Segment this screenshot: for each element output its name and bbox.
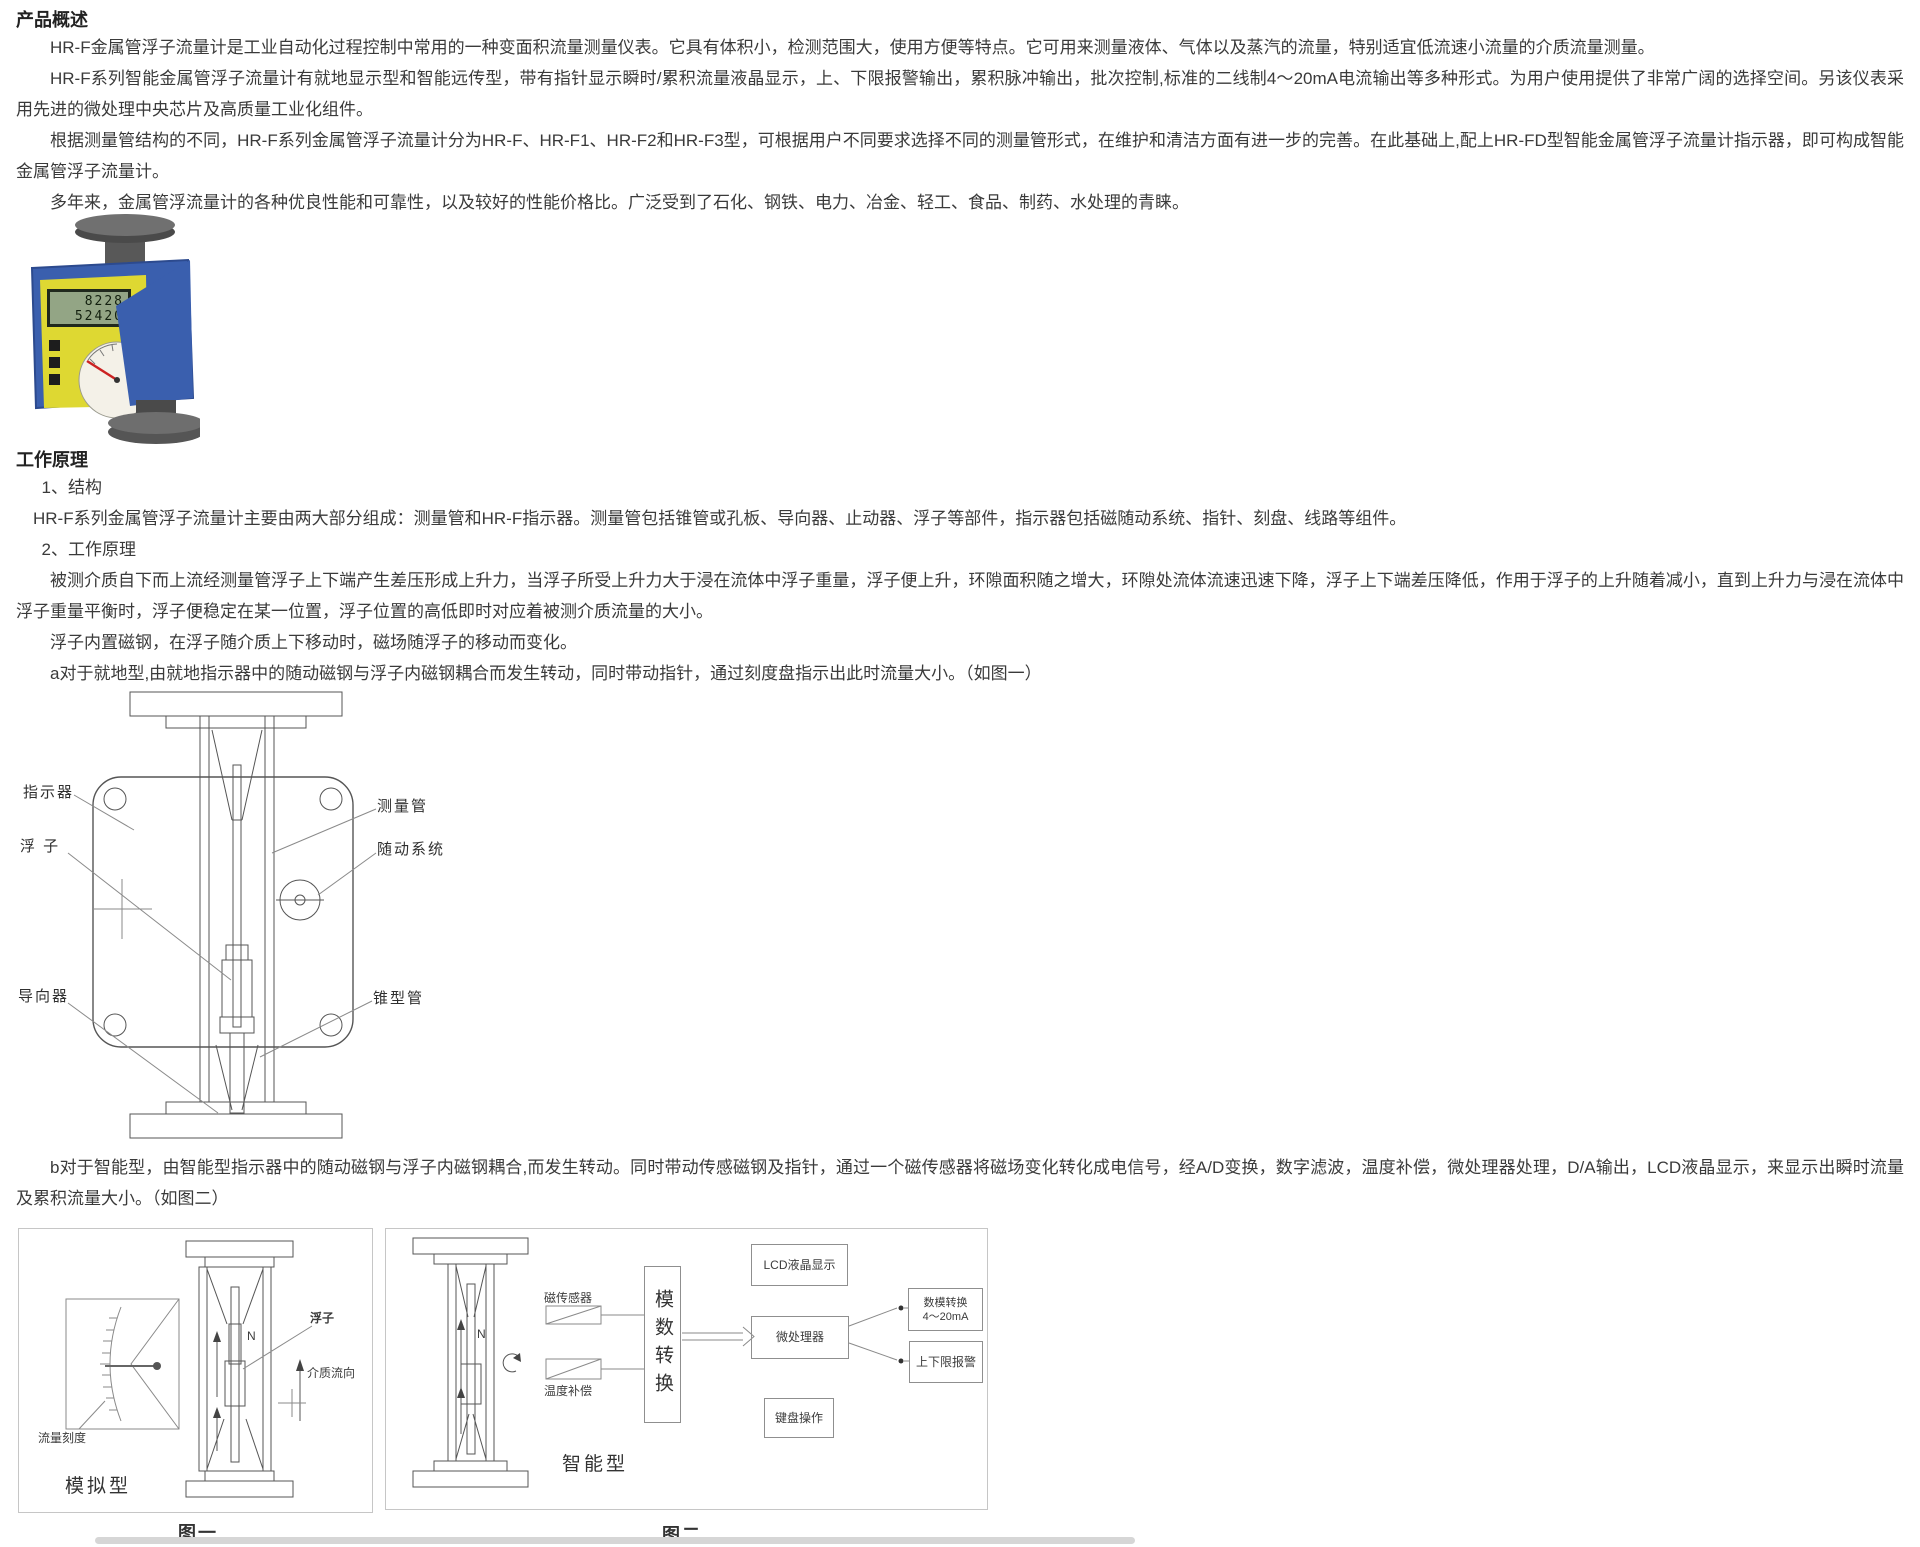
label-magnetic-sensor: 磁传感器 — [544, 1289, 592, 1306]
figure-2-smart-type: 磁传感器 温度补偿 模数转换 LCD液晶显示 微处理器 键盘操作 数模转换 4～… — [385, 1228, 988, 1510]
keyboard-block: 键盘操作 — [764, 1398, 834, 1438]
label-measuring-tube: 测量管 — [377, 795, 428, 816]
main-diagram-drawing — [16, 685, 476, 1155]
keyboard-block-label: 键盘操作 — [775, 1411, 823, 1426]
measuring-tube-walls — [200, 716, 274, 1102]
bottom-flange — [130, 1102, 342, 1138]
dac-block-label-2: 4～20mA — [923, 1310, 969, 1324]
principle-paragraph-b: b对于智能型，由智能型指示器中的随动磁钢与浮子内磁钢耦合,而发生转动。同时带动传… — [16, 1152, 1904, 1214]
horizontal-scrollbar-thumb[interactable] — [95, 1537, 1135, 1544]
label-guide: 导向器 — [18, 985, 69, 1006]
photo-body: 8228 52420 — [32, 260, 193, 418]
label-flow-scale: 流量刻度 — [38, 1429, 86, 1446]
adc-block: 模数转换 — [644, 1266, 681, 1423]
principle-paragraph-2: 浮子内置磁钢，在浮子随介质上下移动时，磁场随浮子的移动而变化。 — [16, 627, 1904, 658]
overview-heading: 产品概述 — [16, 8, 1904, 32]
working-principle-section: 工作原理 1、结构 HR-F系列金属管浮子流量计主要由两大部分组成：测量管和HR… — [0, 448, 1920, 689]
photo-button-1 — [49, 340, 60, 351]
photo-button-3 — [49, 374, 60, 385]
label-indicator: 指示器 — [23, 781, 74, 802]
label-figure1-magnet-n: N — [247, 1329, 256, 1343]
dac-block-label-1: 数模转换 — [924, 1296, 968, 1310]
overview-paragraph-2: HR-F系列智能金属管浮子流量计有就地显示型和智能远传型，带有指针显示瞬时/累积… — [16, 63, 1904, 125]
dial-plate — [66, 1299, 179, 1429]
label-medium-flow-direction: 介质流向 — [307, 1364, 355, 1381]
photo-button-2 — [49, 357, 60, 368]
product-photo: 8228 52420 — [20, 210, 200, 446]
smart-type-paragraph-section: b对于智能型，由智能型指示器中的随动磁钢与浮子内磁钢耦合,而发生转动。同时带动传… — [0, 1152, 1920, 1214]
sensor-boxes — [546, 1306, 601, 1379]
microprocessor-block: 微处理器 — [751, 1316, 849, 1359]
label-float: 浮 子 — [20, 835, 60, 856]
figure2-tube — [413, 1238, 528, 1487]
flowmeter-photo-graphic: 8228 52420 — [20, 210, 200, 446]
principle-heading: 工作原理 — [16, 448, 1904, 472]
label-cone-tube: 锥型管 — [373, 987, 424, 1008]
lcd-reading-total: 52420 — [75, 309, 124, 324]
label-figure1-float: 浮子 — [310, 1309, 334, 1326]
label-smart-type: 智能型 — [562, 1449, 628, 1476]
overview-paragraph-4: 多年来，金属管浮流量计的各种优良性能和可靠性，以及较好的性能价格比。广泛受到了石… — [16, 187, 1904, 218]
figure-1-analog-type: 流量刻度 模拟型 浮子 介质流向 N — [18, 1228, 373, 1513]
photo-top-flange — [75, 214, 175, 266]
figure1-tube — [186, 1241, 293, 1497]
product-overview-section: 产品概述 HR-F金属管浮子流量计是工业自动化过程控制中常用的一种变面积流量测量… — [0, 8, 1920, 218]
label-follower-system: 随动系统 — [377, 838, 445, 859]
label-analog-type: 模拟型 — [65, 1471, 131, 1498]
label-figure2-magnet-n: N — [477, 1327, 486, 1341]
overview-paragraph-1: HR-F金属管浮子流量计是工业自动化过程控制中常用的一种变面积流量测量仪表。它具… — [16, 32, 1904, 63]
structure-title: 1、结构 — [16, 472, 1904, 503]
label-temperature-compensation: 温度补偿 — [544, 1382, 592, 1399]
flow-direction-arrow — [278, 1359, 306, 1421]
structure-text: HR-F系列金属管浮子流量计主要由两大部分组成：测量管和HR-F指示器。测量管包… — [16, 503, 1904, 534]
principle-subtitle: 2、工作原理 — [16, 534, 1904, 565]
figure2-drawing — [386, 1229, 987, 1509]
main-cross-section-diagram: 指示器 浮 子 导向器 测量管 随动系统 锥型管 — [16, 685, 476, 1155]
overview-paragraph-3: 根据测量管结构的不同，HR-F系列金属管浮子流量计分为HR-F、HR-F1、HR… — [16, 125, 1904, 187]
lcd-display-block: LCD液晶显示 — [751, 1244, 848, 1286]
dac-block: 数模转换 4～20mA — [908, 1288, 983, 1331]
top-flange — [130, 692, 342, 728]
leader-lines — [68, 795, 376, 1113]
principle-paragraph-1: 被测介质自下而上流经测量管浮子上下端产生差压形成上升力，当浮子所受上升力大于浸在… — [16, 565, 1904, 627]
alarm-block: 上下限报警 — [909, 1341, 983, 1383]
adc-block-label: 模数转换 — [655, 1289, 670, 1401]
float-assembly — [212, 730, 262, 1113]
